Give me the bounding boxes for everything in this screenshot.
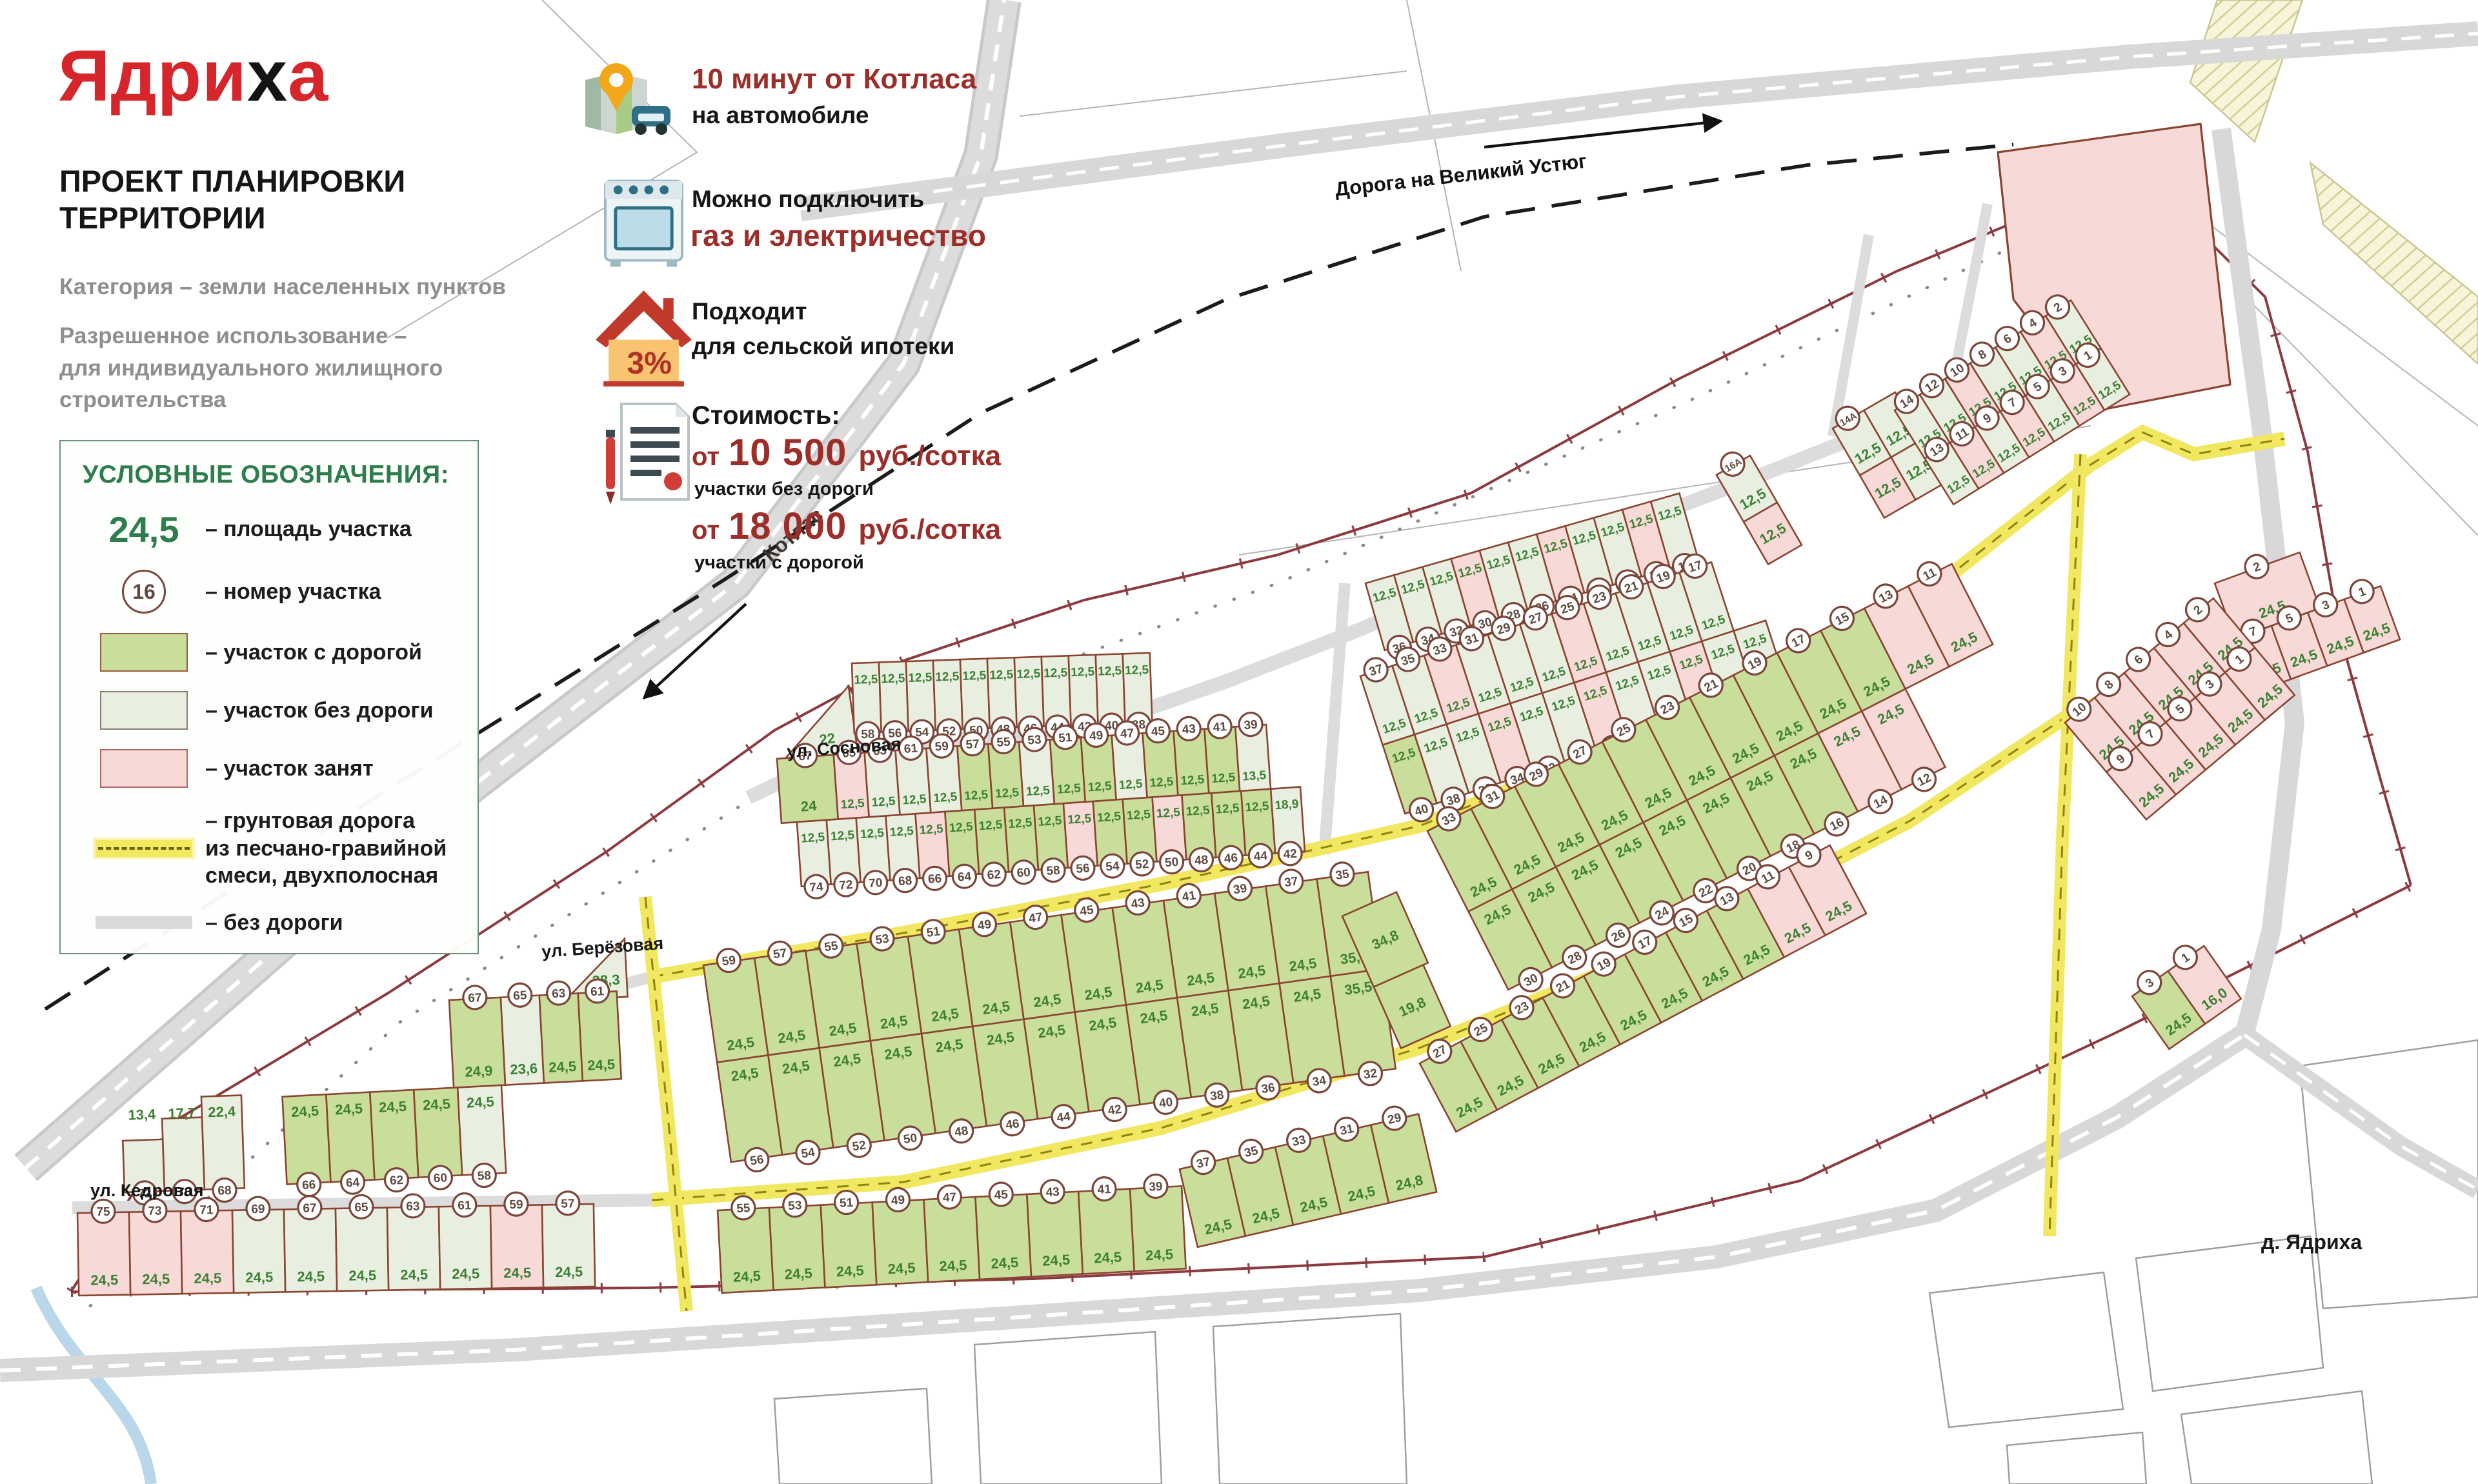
plot-number: 49	[891, 1194, 905, 1208]
plot-number: 52	[851, 1139, 867, 1154]
house-mortgage-icon: 3%	[590, 283, 697, 389]
usage-text: Разрешенное использование – для индивиду…	[59, 320, 443, 416]
plot-area: 13,5	[1242, 768, 1267, 784]
label-village: д. Ядриха	[2261, 1230, 2362, 1254]
plot-number-sample: 16	[122, 570, 166, 614]
plot-number: 64	[957, 870, 972, 884]
plot-number: 58	[477, 1169, 491, 1183]
plot-number: 62	[987, 868, 1002, 882]
plot-number: 52	[1135, 857, 1150, 872]
legend-number-label: – номер участка	[205, 578, 381, 606]
legend-item-area: 24,5 – площадь участка	[83, 508, 456, 550]
plot-number: 42	[1283, 847, 1298, 861]
feature4-price2: от18 000руб./сотка	[692, 505, 1001, 548]
plot-number: 44	[1056, 1110, 1071, 1125]
plot-area: 12,5	[1185, 803, 1211, 819]
plot-number: 42	[1107, 1103, 1123, 1118]
feature4-price1: от10 500руб./сотка	[692, 431, 1001, 474]
plot-area: 12,5	[1118, 777, 1143, 793]
plot-area: 24	[800, 797, 818, 815]
plot-number: 68	[217, 1184, 232, 1198]
plot-number: 61	[903, 742, 918, 756]
label-kedrovaya: ул. Кедровая	[90, 1181, 203, 1200]
plot-area: 24,5	[378, 1098, 407, 1116]
plot-number: 43	[1130, 896, 1145, 912]
plot-area: 24,5	[400, 1267, 428, 1283]
plot-number: 59	[721, 954, 737, 969]
plot-area: 12,5	[994, 786, 1020, 801]
swatch-plot-occupied	[100, 749, 188, 788]
plot-area: 12,5	[933, 790, 958, 806]
swatch-plot-without-road	[100, 691, 188, 730]
plot-number: 55	[736, 1201, 751, 1216]
plot-number: 55	[823, 939, 839, 955]
plot-number: 49	[1089, 728, 1103, 743]
feature1-title: 10 минут от Котласа	[692, 63, 976, 95]
legend: УСЛОВНЫЕ ОБОЗНАЧЕНИЯ: 24,5 – площадь уча…	[59, 440, 479, 954]
plot-area: 12,5	[830, 828, 855, 844]
plot-number: 47	[1028, 910, 1043, 926]
legend-item-road: – участок с дорогой	[83, 633, 456, 672]
legend-gravel-label: – грунтовая дорога из песчано-гравийной …	[205, 807, 447, 890]
plot-area: 12,5	[1098, 664, 1122, 678]
plot-area: 17,7	[168, 1105, 196, 1121]
plot-area: 24,5	[555, 1263, 583, 1280]
plot-area: 12,5	[1149, 775, 1174, 790]
plot-number: 50	[1164, 856, 1179, 870]
plot-number: 71	[199, 1203, 214, 1217]
plot-number: 67	[303, 1201, 317, 1215]
plot-number: 65	[354, 1201, 368, 1214]
plot-area: 12,5	[1008, 816, 1033, 832]
plot-area: 12,5	[1215, 801, 1240, 817]
legend-title: УСЛОВНЫЕ ОБОЗНАЧЕНИЯ:	[83, 461, 456, 489]
plot-area: 23,6	[510, 1060, 538, 1078]
page-title: Ядриха	[58, 40, 328, 112]
plot-number: 49	[977, 917, 992, 933]
plot-area: 22,4	[208, 1103, 236, 1121]
plot-area: 12,5	[1056, 781, 1082, 797]
document-pen-icon	[603, 399, 694, 508]
plot-area: 24,5	[422, 1096, 450, 1113]
feature4-note1: участки без дороги	[694, 479, 874, 500]
plot-number: 38	[1209, 1088, 1225, 1104]
plot-number: 48	[1194, 854, 1209, 868]
plot-area: 12,5	[1038, 814, 1063, 829]
plot-number: 59	[509, 1198, 523, 1212]
plot-area: 24,5	[1094, 1248, 1122, 1266]
plot-number: 63	[552, 987, 566, 1001]
plot-number: 40	[1158, 1096, 1174, 1111]
plot-number: 45	[1079, 903, 1094, 919]
page-subtitle: ПРОЕКТ ПЛАНИРОВКИ ТЕРРИТОРИИ	[59, 163, 405, 237]
plot-area: 12,5	[1125, 663, 1149, 677]
plot-number: 50	[903, 1131, 918, 1147]
plot-area: 12,5	[1025, 784, 1051, 799]
plot-number: 53	[1027, 733, 1042, 747]
legend-noroad-label: – участок без дороги	[205, 697, 433, 725]
plot-number: 39	[1244, 718, 1258, 732]
plot-number: 54	[1105, 859, 1120, 874]
plot-area: 12,5	[1043, 666, 1068, 680]
feature3-pre: Подходит	[692, 298, 807, 325]
poster: 2212,55812,55612,55412,55212,55012,54812…	[0, 0, 2478, 1484]
plot-number: 67	[468, 991, 482, 1005]
legend-item-nodrive: – без дороги	[83, 909, 456, 937]
plot-number: 37	[1284, 874, 1299, 890]
plot-number: 41	[1182, 889, 1197, 905]
plot-number: 72	[839, 878, 854, 892]
plot-number: 39	[1233, 882, 1248, 897]
plot-number: 65	[513, 988, 528, 1003]
plot-number: 57	[965, 737, 980, 752]
plot-number: 73	[148, 1205, 162, 1218]
plot-number: 43	[1045, 1185, 1060, 1199]
plot-area: 12,5	[840, 797, 865, 812]
plot-area: 12,5	[1180, 773, 1205, 788]
plot-area: 12,5	[1087, 779, 1113, 795]
plot-number: 57	[772, 947, 788, 962]
plot-number: 59	[934, 739, 949, 754]
plot-area: 12,5	[1126, 808, 1151, 823]
plot-number: 61	[458, 1199, 472, 1212]
plot-number: 61	[590, 985, 605, 999]
plot-number: 51	[1058, 731, 1073, 745]
plot-number: 41	[1097, 1183, 1112, 1197]
feature4-label: Стоимость:	[692, 401, 840, 430]
plot-number: 74	[809, 880, 824, 894]
legend-item-gravel: – грунтовая дорога из песчано-гравийной …	[83, 807, 456, 890]
legend-area-label: – площадь участка	[205, 516, 412, 543]
feature2-pre: Можно подключить	[692, 186, 924, 213]
plot-area: 24,5	[939, 1257, 967, 1274]
feature2-title: газ и электричество	[690, 218, 986, 253]
plot-number: 53	[788, 1199, 802, 1213]
plot-area: 24,5	[587, 1056, 616, 1074]
gravel-road-sample	[96, 840, 192, 857]
plot-area: 12,5	[1016, 667, 1041, 681]
plot-area: 12,5	[1156, 806, 1181, 821]
plot-number: 47	[942, 1190, 956, 1205]
plot-area: 24,5	[549, 1058, 577, 1076]
plot-area: 24,5	[466, 1094, 494, 1111]
map-pin-car-icon	[578, 52, 681, 148]
plot-number: 46	[1005, 1117, 1020, 1132]
feature3-sub: для сельской ипотеки	[692, 333, 954, 360]
plot-area: 12,5	[854, 673, 878, 687]
plot-number: 53	[874, 932, 890, 947]
plot-area: 12,5	[949, 820, 974, 836]
plot-area: 12,5	[1211, 771, 1236, 787]
legend-item-busy: – участок занят	[83, 749, 456, 788]
feature1-sub: на автомобиле	[692, 102, 869, 129]
plot-area: 12,5	[1071, 665, 1095, 679]
plot-area: 12,5	[1067, 812, 1093, 827]
swatch-plot-with-road	[100, 633, 188, 672]
plot-number: 66	[302, 1178, 316, 1192]
plot-area: 24,5	[1042, 1252, 1071, 1269]
plot-area: 24,5	[1145, 1246, 1173, 1263]
no-road-line-sample	[96, 916, 192, 929]
plot-area: 12,5	[889, 824, 914, 839]
plot-number: 63	[406, 1200, 420, 1214]
feature4-note2: участки с дорогой	[694, 552, 864, 574]
plot-number: 35	[1335, 867, 1350, 883]
plot-area: 12,5	[902, 792, 927, 808]
plot-area: 13,4	[128, 1106, 156, 1123]
plot-number: 51	[840, 1196, 854, 1210]
legend-road-label: – участок с дорогой	[205, 639, 422, 667]
plot-number: 64	[346, 1176, 361, 1190]
plot-area: 12,5	[881, 672, 905, 686]
plot-number: 62	[389, 1174, 403, 1188]
legend-item-noroad: – участок без дороги	[83, 691, 456, 730]
plot-area: 12,5	[964, 788, 989, 803]
plot-area: 24,5	[90, 1272, 118, 1288]
plot-area: 24,5	[784, 1265, 812, 1282]
legend-item-number: 16 – номер участка	[83, 570, 456, 614]
plot-number: 45	[1151, 725, 1165, 739]
plot-number: 41	[1213, 720, 1227, 734]
plot-number: 69	[251, 1203, 265, 1216]
plot-number: 55	[996, 736, 1011, 750]
plot-area: 12,5	[919, 822, 944, 837]
plot-area: 12,5	[1245, 799, 1270, 815]
plot-number: 70	[869, 876, 883, 890]
plot-area: 12,5	[989, 668, 1014, 682]
plot-area: 24,5	[245, 1269, 273, 1286]
plot-area: 24,5	[732, 1268, 761, 1285]
plot-area: 24,5	[291, 1103, 319, 1120]
plot-area: 24,5	[194, 1270, 221, 1287]
plot-number: 43	[1182, 722, 1196, 736]
plot-number: 60	[433, 1171, 447, 1185]
plot-number: 56	[1076, 861, 1091, 876]
plot-area: 24,5	[142, 1271, 170, 1288]
svg-text:3%: 3%	[627, 346, 672, 381]
plot-area: 12,5	[1096, 810, 1122, 825]
plot-area: 24,5	[297, 1268, 325, 1285]
plot-number: 51	[925, 925, 941, 940]
plot-area: 12,5	[935, 670, 960, 684]
plot-area: 24,9	[465, 1063, 493, 1080]
legend-busy-label: – участок занят	[205, 755, 374, 783]
legend-nodrive-label: – без дороги	[205, 909, 343, 937]
plot-number: 46	[1224, 851, 1238, 865]
plot-area: 24,5	[991, 1254, 1019, 1272]
plot-area: 24,5	[348, 1267, 376, 1284]
plot-area: 12,5	[908, 671, 932, 685]
plot-number: 32	[1363, 1067, 1378, 1082]
area-sample: 24,5	[109, 508, 179, 550]
plot-area: 24,5	[503, 1265, 531, 1281]
plot-number: 45	[994, 1188, 1009, 1202]
plot-area: 24,5	[887, 1259, 916, 1277]
plot-number: 44	[1253, 849, 1268, 863]
plot-number: 34	[1311, 1074, 1327, 1089]
plot-area: 12,5	[978, 818, 1003, 834]
plot-number: 54	[800, 1146, 816, 1161]
plot-area: 12,5	[962, 669, 987, 683]
plot-area: 12,5	[860, 827, 885, 842]
plot-area: 24,5	[335, 1100, 363, 1118]
plot-area: 12,5	[801, 830, 826, 846]
plot-number: 36	[1260, 1081, 1276, 1096]
plot-number: 56	[749, 1153, 765, 1168]
gas-stove-icon	[600, 173, 687, 270]
plot-number: 57	[561, 1197, 575, 1210]
plot-area: 24,5	[836, 1262, 864, 1279]
plot-area: 24,5	[452, 1265, 479, 1282]
plot-number: 58	[1046, 864, 1061, 878]
plot-number: 48	[954, 1124, 969, 1139]
plot-area: 12,5	[871, 794, 896, 810]
plot-number: 39	[1149, 1180, 1163, 1194]
plot-number: 75	[96, 1205, 110, 1219]
category-text: Категория – земли населенных пунктов	[59, 271, 506, 303]
plot-number: 60	[1016, 866, 1031, 880]
plot-area: 18,9	[1274, 797, 1299, 813]
plot-number: 68	[898, 874, 912, 888]
plot-number: 47	[1120, 727, 1134, 741]
plot-number: 66	[927, 872, 942, 886]
